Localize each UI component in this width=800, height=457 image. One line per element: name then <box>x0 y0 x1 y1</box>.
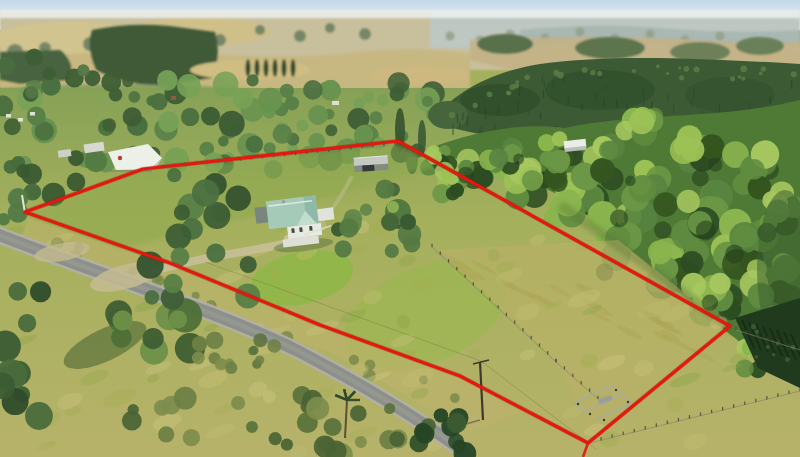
distant-shed <box>564 139 587 152</box>
aerial-property-photo: Aerial drone photograph of a rural lifes… <box>0 0 800 457</box>
barn-shed <box>354 156 389 172</box>
photo-canvas: Aerial drone photograph of a rural lifes… <box>0 0 800 457</box>
